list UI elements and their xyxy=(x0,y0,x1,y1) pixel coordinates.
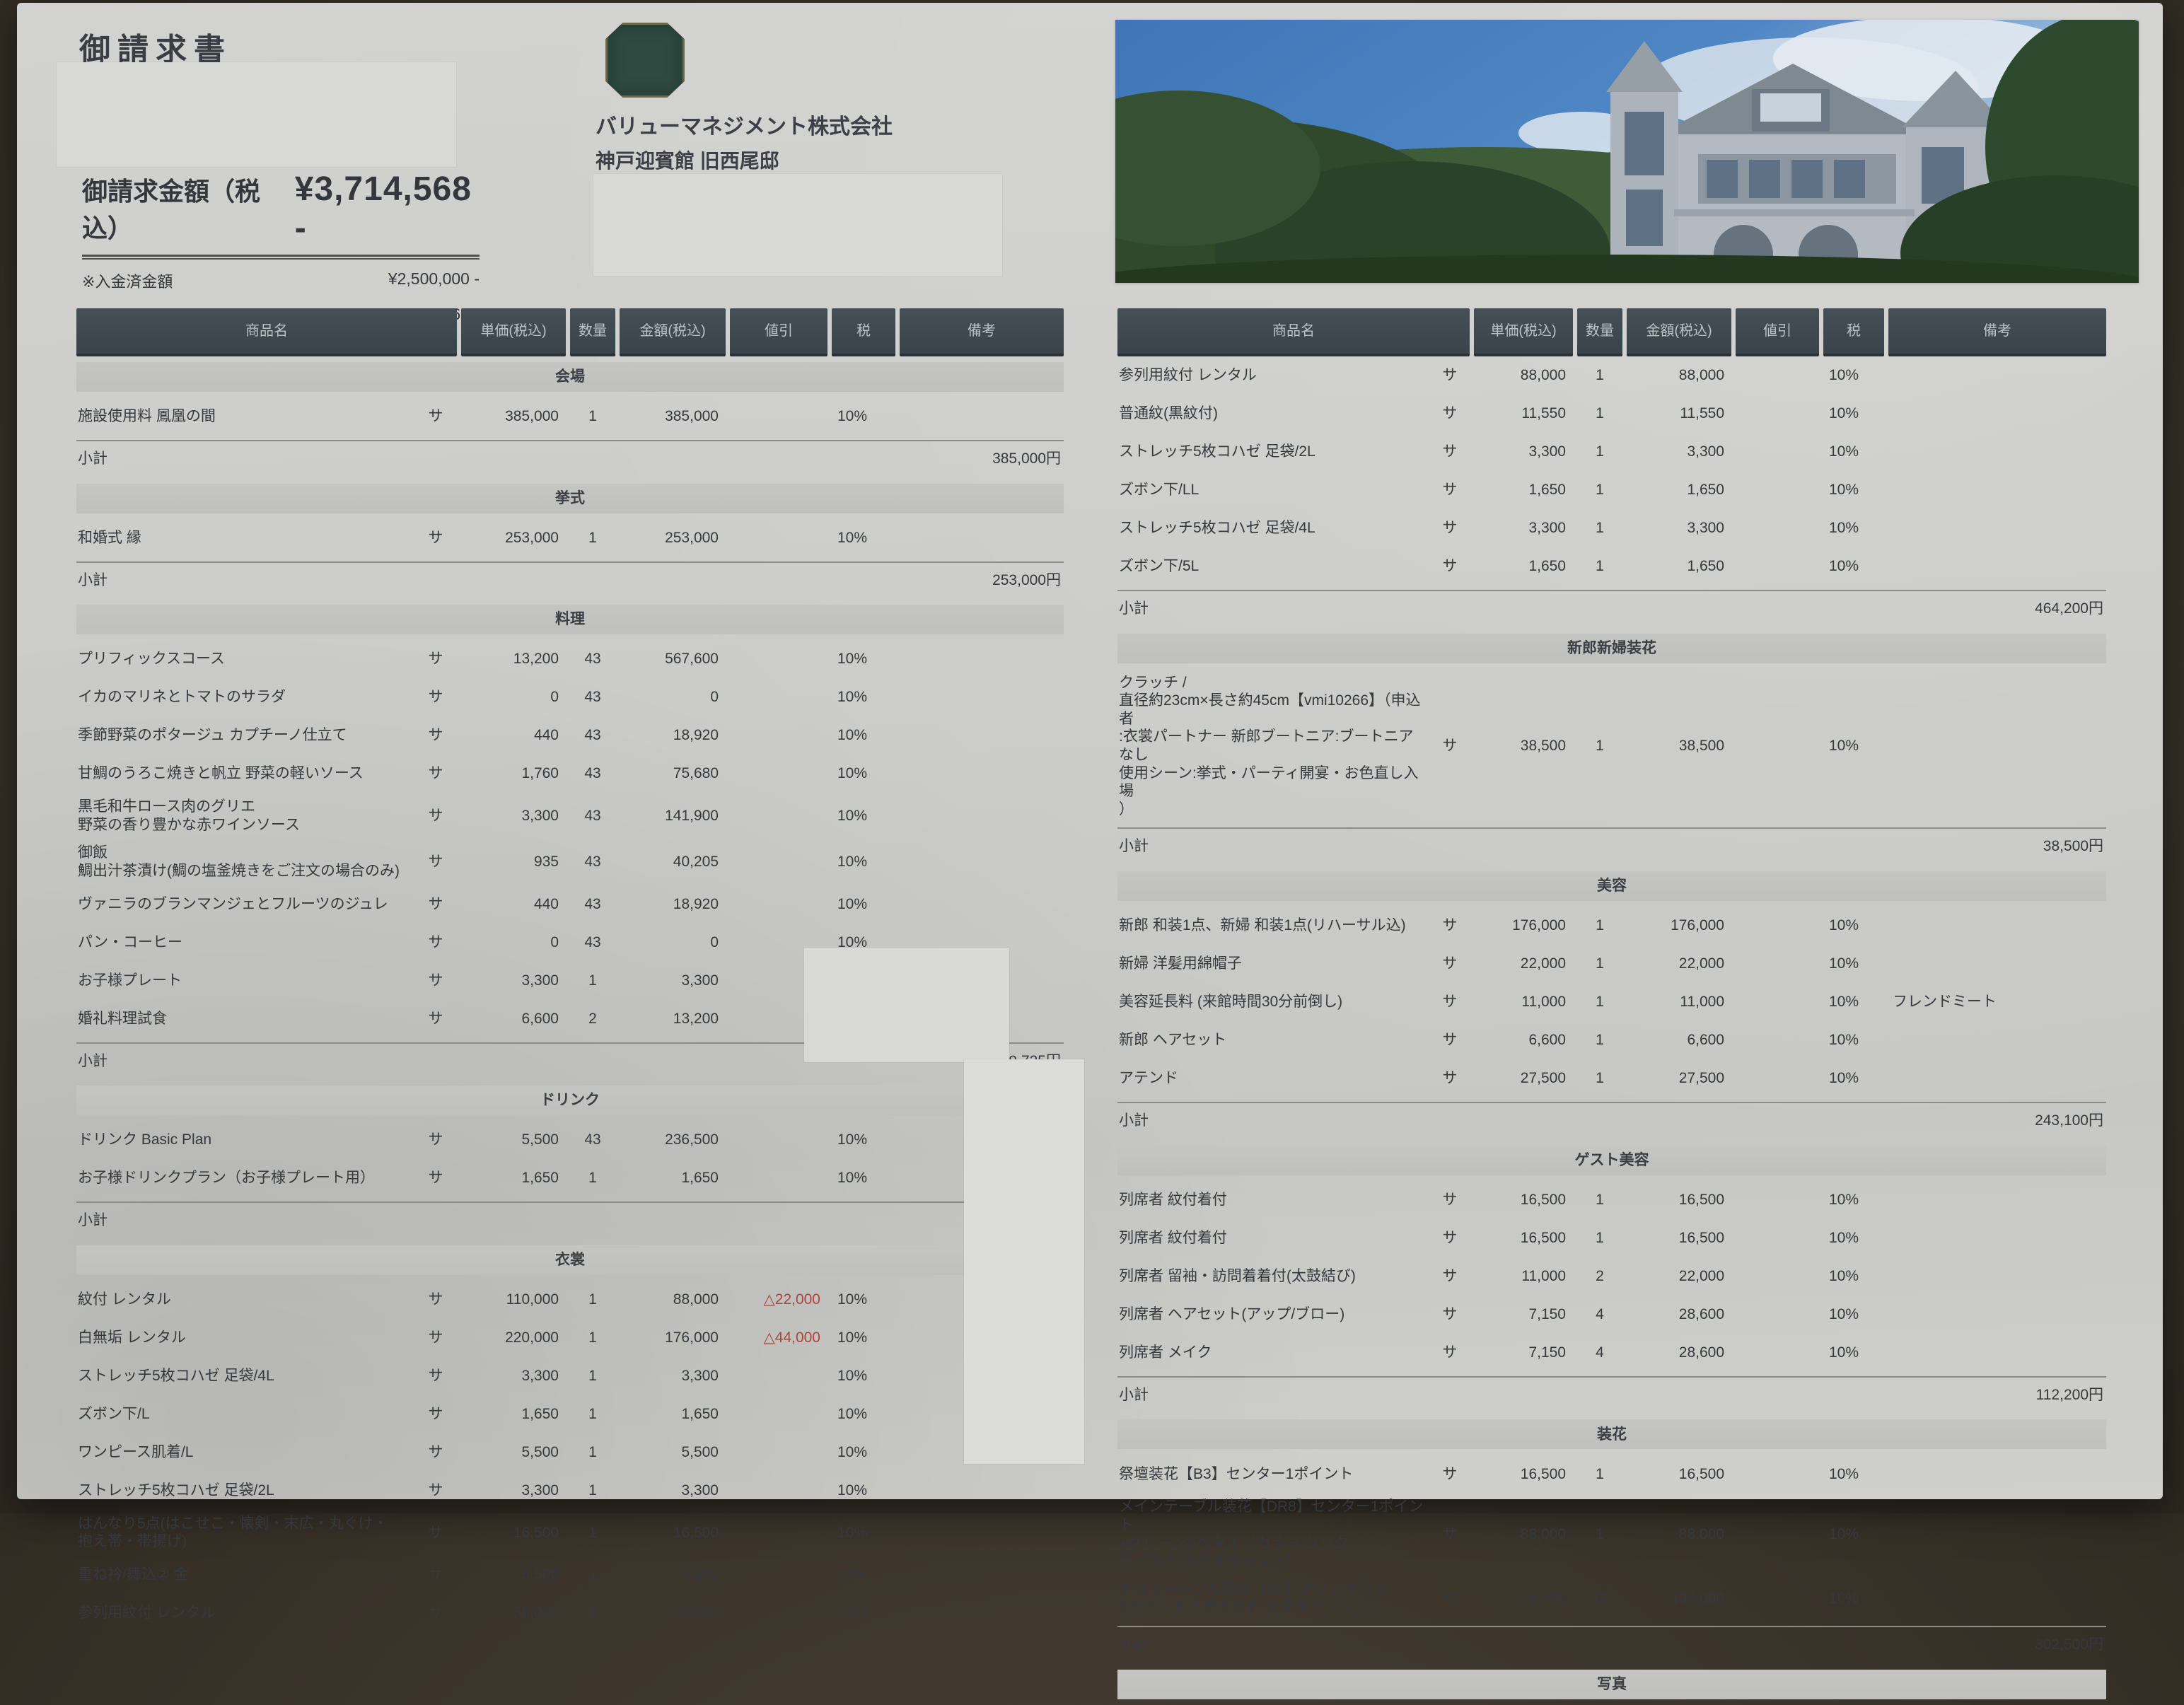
tax-rate-cell: 10% xyxy=(1823,737,1884,755)
billing-summary: 御請求金額（税込） ¥3,714,568 - ※入金済金額 ¥2,500,000… xyxy=(82,170,480,327)
tax-rate-cell: 10% xyxy=(832,1131,895,1149)
line-item-row: ズボン下/Lサ1,65011,65010% xyxy=(76,1395,1064,1433)
column-header-6: 備考 xyxy=(1888,308,2106,356)
item-name-cell: 白無垢 レンタル xyxy=(76,1329,410,1347)
line-item-row: 普通紋(黒紋付)サ11,550111,55010% xyxy=(1117,395,2106,433)
unit-price-cell: 16,500 xyxy=(1474,1590,1573,1608)
unit-price-cell: 11,550 xyxy=(1474,405,1573,423)
service-mark-cell: サ xyxy=(414,1291,457,1309)
issuer-venue-name: 神戸迎賓館 旧西尾邸 xyxy=(596,146,1020,174)
tax-rate-cell: 10% xyxy=(1823,1344,1884,1362)
subtotal-amount: 112,200円 xyxy=(2036,1386,2103,1404)
service-mark-cell: サ xyxy=(1430,916,1470,935)
amount-cell: 27,500 xyxy=(1627,1069,1731,1088)
quantity-cell: 1 xyxy=(570,407,615,426)
column-header-5: 税 xyxy=(832,308,895,356)
service-mark-cell: サ xyxy=(1430,737,1470,755)
unit-price-cell: 1,760 xyxy=(461,764,566,783)
line-item-row: 季節野菜のポタージュ カプチーノ仕立てサ4404318,92010% xyxy=(76,716,1064,755)
tax-rate-cell: 10% xyxy=(832,895,895,914)
tax-rate-cell: 10% xyxy=(1823,1305,1884,1324)
quantity-cell: 43 xyxy=(570,1131,615,1149)
redacted-bottom-block xyxy=(964,1059,1084,1464)
tax-rate-cell: 10% xyxy=(832,688,895,706)
service-mark-cell: サ xyxy=(1430,1344,1470,1362)
subtotal-label: 小計 xyxy=(1119,837,1149,856)
subtotal-label: 小計 xyxy=(1119,1386,1149,1404)
subtotal-amount: 253,000円 xyxy=(992,571,1061,590)
amount-cell: 16,500 xyxy=(1627,1229,1731,1247)
amount-cell: 11,000 xyxy=(1627,993,1731,1011)
amount-cell: 3,300 xyxy=(620,1482,726,1500)
unit-price-cell: 88,000 xyxy=(1474,366,1573,385)
quantity-cell: 12 xyxy=(1577,1590,1622,1608)
tax-rate-cell: 10% xyxy=(1823,1031,1884,1049)
service-mark-cell: サ xyxy=(414,1604,457,1622)
amount-cell: 0 xyxy=(620,688,726,706)
item-name-cell: メインテーブル装花【DR8】センター1ポイント +グリーン&ペタル（カラー:シッ… xyxy=(1117,1498,1426,1570)
service-mark-cell: サ xyxy=(1430,955,1470,973)
amount-cell: 75,680 xyxy=(620,764,726,783)
line-item-row: ストレッチ5枚コハゼ 足袋/2Lサ3,30013,30010% xyxy=(1117,433,2106,471)
amount-cell: 0 xyxy=(620,933,726,952)
quantity-cell: 43 xyxy=(570,933,615,952)
amount-cell: 176,000 xyxy=(1627,916,1731,935)
amount-cell: 88,000 xyxy=(1627,1525,1731,1544)
tax-rate-cell: 10% xyxy=(1823,955,1884,973)
unit-price-cell: 1,650 xyxy=(1474,557,1573,576)
subtotal-label: 小計 xyxy=(78,571,108,590)
quantity-cell: 43 xyxy=(570,807,615,825)
amount-cell: 253,000 xyxy=(620,529,726,547)
amount-cell: 236,500 xyxy=(620,1131,726,1149)
amount-cell: 11,550 xyxy=(1627,405,1731,423)
service-mark-cell: サ xyxy=(1430,1229,1470,1247)
column-header-0: 商品名 xyxy=(1117,308,1470,356)
item-name-cell: クラッチ / 直径約23cm×長さ約45cm【vmi10266】（申込者 :衣裳… xyxy=(1117,674,1426,819)
service-mark-cell: サ xyxy=(414,1524,457,1542)
line-item-row: ズボン下/5Lサ1,65011,65010% xyxy=(1117,547,2106,586)
subtotal-row: 小計385,000円 xyxy=(76,440,1064,478)
item-name-cell: 列席者 留袖・訪問着着付(太鼓結び) xyxy=(1117,1267,1426,1286)
item-name-cell: お子様プレート xyxy=(76,972,410,990)
service-mark-cell: サ xyxy=(414,1010,457,1028)
quantity-cell: 1 xyxy=(1577,443,1622,461)
tax-rate-cell: 10% xyxy=(1823,1069,1884,1088)
quantity-cell: 1 xyxy=(1577,1191,1622,1209)
item-name-cell: ワンピース肌着/L xyxy=(76,1443,410,1462)
line-item-row: 黒毛和牛ロース肉のグリエ 野菜の香り豊かな赤ワインソースサ3,30043141,… xyxy=(76,793,1064,839)
line-item-row: ストレッチ5枚コハゼ 足袋/4Lサ3,30013,30010% xyxy=(1117,509,2106,547)
quantity-cell: 1 xyxy=(1577,955,1622,973)
tax-rate-cell: 10% xyxy=(1823,1465,1884,1484)
line-item-row: 列席者 留袖・訪問着着付(太鼓結び)サ11,000222,00010% xyxy=(1117,1257,2106,1296)
tax-rate-cell: 10% xyxy=(832,1367,895,1385)
unit-price-cell: 440 xyxy=(461,895,566,914)
line-item-row: 御飯 鯛出汁茶漬け(鯛の塩釜焼きをご注文の場合のみ)サ9354340,20510… xyxy=(76,839,1064,885)
quantity-cell: 1 xyxy=(570,1405,615,1424)
venue-crest-logo-icon xyxy=(605,23,685,98)
line-item-row: 参列用紋付 レンタルサ88,000188,00010% xyxy=(1117,356,2106,395)
amount-cell: 38,500 xyxy=(1627,737,1731,755)
quantity-cell: 1 xyxy=(570,1291,615,1309)
issuer-company-name: バリューマネジメント株式会社 xyxy=(596,109,1020,140)
subtotal-row: 小計112,200円 xyxy=(1117,1376,2106,1414)
remarks-cell: フレンドミート xyxy=(1888,993,2106,1011)
quantity-cell: 2 xyxy=(1577,1267,1622,1286)
column-header-5: 税 xyxy=(1823,308,1884,356)
item-name-cell: 甘鯛のうろこ焼きと帆立 野菜の軽いソース xyxy=(76,764,410,783)
service-mark-cell: サ xyxy=(1430,1267,1470,1286)
venue-photo-image xyxy=(1115,20,2139,283)
service-mark-cell: サ xyxy=(414,895,457,914)
unit-price-cell: 3,300 xyxy=(461,972,566,990)
line-item-row: イカのマリネとトマトのサラダサ043010% xyxy=(76,678,1064,716)
column-header-3: 金額(税込) xyxy=(620,308,726,356)
service-mark-cell: サ xyxy=(1430,1191,1470,1209)
item-name-cell: ストレッチ5枚コハゼ 足袋/2L xyxy=(76,1482,410,1500)
item-name-cell: 新婦 洋髪用綿帽子 xyxy=(1117,955,1426,973)
quantity-cell: 43 xyxy=(570,764,615,783)
column-header-0: 商品名 xyxy=(76,308,457,356)
line-item-row: 美容延長料 (来館時間30分前倒し)サ11,000111,00010%フレンドミ… xyxy=(1117,983,2106,1021)
tax-rate-cell: 10% xyxy=(1823,916,1884,935)
unit-price-cell: 16,500 xyxy=(1474,1191,1573,1209)
quantity-cell: 43 xyxy=(570,650,615,668)
tax-rate-cell: 10% xyxy=(832,853,895,871)
quantity-cell: 43 xyxy=(570,853,615,871)
line-item-row: ストレッチ5枚コハゼ 足袋/4Lサ3,30013,30010% xyxy=(76,1357,1064,1395)
table-header-row: 商品名単価(税込)数量金額(税込)値引税備考 xyxy=(76,308,1064,356)
unit-price-cell: 16,500 xyxy=(1474,1465,1573,1484)
item-name-cell: 参列用紋付 レンタル xyxy=(1117,366,1426,385)
tax-rate-cell: 10% xyxy=(1823,519,1884,537)
quantity-cell: 43 xyxy=(570,895,615,914)
tax-rate-cell: 10% xyxy=(832,1405,895,1424)
service-mark-cell: サ xyxy=(414,650,457,668)
line-item-row: プリフィックスコースサ13,20043567,60010% xyxy=(76,640,1064,678)
amount-cell: 1,650 xyxy=(620,1405,726,1424)
line-item-row: 列席者 メイクサ7,150428,60010% xyxy=(1117,1334,2106,1372)
column-header-3: 金額(税込) xyxy=(1627,308,1731,356)
quantity-cell: 1 xyxy=(570,1367,615,1385)
subtotal-label: 小計 xyxy=(78,450,108,468)
quantity-cell: 1 xyxy=(1577,405,1622,423)
amount-cell: 55,000 xyxy=(620,1604,726,1622)
service-mark-cell: サ xyxy=(1430,366,1470,385)
line-item-row: 新婦 洋髪用綿帽子サ22,000122,00010% xyxy=(1117,945,2106,983)
item-name-cell: 祭壇装花【B3】センター1ポイント xyxy=(1117,1465,1426,1484)
quantity-cell: 1 xyxy=(1577,1465,1622,1484)
quantity-cell: 1 xyxy=(570,1604,615,1622)
amount-cell: 22,000 xyxy=(1627,955,1731,973)
service-mark-cell: サ xyxy=(414,1169,457,1187)
unit-price-cell: 1,650 xyxy=(1474,481,1573,499)
tax-rate-cell: 10% xyxy=(1823,1229,1884,1247)
paid-amount-line: ※入金済金額 ¥2,500,000 - xyxy=(82,269,480,292)
unit-price-cell: 5,500 xyxy=(461,1566,566,1584)
tax-rate-cell: 10% xyxy=(832,807,895,825)
service-mark-cell: サ xyxy=(414,933,457,952)
quantity-cell: 1 xyxy=(570,1482,615,1500)
quantity-cell: 4 xyxy=(1577,1344,1622,1362)
unit-price-cell: 16,500 xyxy=(1474,1229,1573,1247)
line-item-row: ゲストテーブル装花【F5】クリアグラス 3ポイント（テイスト:スタイリッシュ）サ… xyxy=(1117,1576,2106,1622)
unit-price-cell: 1,650 xyxy=(461,1405,566,1424)
unit-price-cell: 3,300 xyxy=(461,1367,566,1385)
amount-cell: 1,650 xyxy=(620,1169,726,1187)
unit-price-cell: 0 xyxy=(461,933,566,952)
item-name-cell: 新郎 ヘアセット xyxy=(1117,1031,1426,1049)
item-name-cell: ドリンク Basic Plan xyxy=(76,1131,410,1149)
line-item-row: ドリンク Basic Planサ5,50043236,50010% xyxy=(76,1121,1064,1159)
tax-rate-cell: 10% xyxy=(832,1482,895,1500)
quantity-cell: 1 xyxy=(570,529,615,547)
tax-rate-cell: 10% xyxy=(1823,557,1884,576)
service-mark-cell: サ xyxy=(1430,1069,1470,1088)
total-amount-line: 御請求金額（税込） ¥3,714,568 - xyxy=(82,170,480,257)
column-header-1: 単価(税込) xyxy=(461,308,566,356)
section-header: ドリンク xyxy=(76,1086,1064,1115)
quantity-cell: 1 xyxy=(1577,557,1622,576)
subtotal-label: 小計 xyxy=(1119,1112,1149,1130)
tax-rate-cell: 10% xyxy=(832,764,895,783)
venue-photo xyxy=(1115,20,2139,283)
unit-price-cell: 3,300 xyxy=(461,807,566,825)
line-item-row: 白無垢 レンタルサ220,0001176,000△44,00010% xyxy=(76,1319,1064,1357)
unit-price-cell: 3,300 xyxy=(1474,443,1573,461)
column-header-2: 数量 xyxy=(1577,308,1622,356)
service-mark-cell: サ xyxy=(414,726,457,745)
unit-price-cell: 1,650 xyxy=(461,1169,566,1187)
quantity-cell: 1 xyxy=(1577,1069,1622,1088)
quantity-cell: 1 xyxy=(1577,481,1622,499)
amount-cell: 3,300 xyxy=(620,972,726,990)
tax-rate-cell: 10% xyxy=(832,1169,895,1187)
line-item-row: 列席者 ヘアセット(アップ/ブロー)サ7,150428,60010% xyxy=(1117,1296,2106,1334)
item-name-cell: 列席者 紋付着付 xyxy=(1117,1229,1426,1247)
item-name-cell: ストレッチ5枚コハゼ 足袋/4L xyxy=(1117,519,1426,537)
amount-cell: 1,650 xyxy=(1627,557,1731,576)
service-mark-cell: サ xyxy=(1430,1590,1470,1608)
unit-price-cell: 7,150 xyxy=(1474,1344,1573,1362)
tax-rate-cell: 10% xyxy=(1823,481,1884,499)
subtotal-label: 小計 xyxy=(1119,600,1149,618)
tax-rate-cell: 10% xyxy=(832,1329,895,1347)
unit-price-cell: 440 xyxy=(461,726,566,745)
line-item-row: ストレッチ5枚コハゼ 足袋/2Lサ3,30013,30010% xyxy=(76,1472,1064,1510)
item-name-cell: 重ね衿/舞込② 金 xyxy=(76,1566,410,1584)
section-header: 写真 xyxy=(1117,1670,2106,1699)
amount-cell: 3,300 xyxy=(620,1367,726,1385)
section-header: 装花 xyxy=(1117,1419,2106,1449)
subtotal-amount: 38,500円 xyxy=(2043,837,2103,856)
line-item-row: クラッチ / 直径約23cm×長さ約45cm【vmi10266】（申込者 :衣裳… xyxy=(1117,669,2106,824)
item-name-cell: パン・コーヒー xyxy=(76,933,410,952)
item-name-cell: 列席者 ヘアセット(アップ/ブロー) xyxy=(1117,1305,1426,1324)
tax-rate-cell: 10% xyxy=(832,1604,895,1622)
column-header-1: 単価(税込) xyxy=(1474,308,1573,356)
subtotal-amount: 464,200円 xyxy=(2035,600,2103,618)
item-name-cell: プリフィックスコース xyxy=(76,650,410,668)
section-header: 料理 xyxy=(76,605,1064,634)
tax-rate-cell: 10% xyxy=(832,1443,895,1462)
subtotal-amount: 243,100円 xyxy=(2035,1112,2103,1130)
line-item-row: 重ね衿/舞込② 金サ5,50015,50010% xyxy=(76,1556,1064,1594)
unit-price-cell: 0 xyxy=(461,688,566,706)
tax-rate-cell: 10% xyxy=(832,650,895,668)
unit-price-cell: 3,300 xyxy=(461,1482,566,1500)
item-name-cell: 婚礼料理試食 xyxy=(76,1010,410,1028)
line-item-row: 和婚式 縁サ253,0001253,00010% xyxy=(76,519,1064,557)
subtotal-label: 小計 xyxy=(1119,1636,1149,1654)
subtotal-row: 小計464,200円 xyxy=(1117,590,2106,628)
quantity-cell: 1 xyxy=(570,972,615,990)
line-item-row: ズボン下/LLサ1,65011,65010% xyxy=(1117,471,2106,509)
unit-price-cell: 11,000 xyxy=(1474,1267,1573,1286)
service-mark-cell: サ xyxy=(414,807,457,825)
amount-cell: 88,000 xyxy=(620,1291,726,1309)
tax-rate-cell: 10% xyxy=(832,726,895,745)
unit-price-cell: 176,000 xyxy=(1474,916,1573,935)
redacted-mid-block xyxy=(804,948,1009,1062)
subtotal-row: 小計243,100円 xyxy=(1117,1102,2106,1140)
amount-cell: 3,300 xyxy=(1627,519,1731,537)
unit-price-cell: 110,000 xyxy=(461,1291,566,1309)
line-item-row: 新郎 和装1点、新婦 和装1点(リハーサル込)サ176,0001176,0001… xyxy=(1117,907,2106,945)
redacted-recipient-block xyxy=(57,62,456,167)
item-name-cell: 参列用紋付 レンタル xyxy=(76,1604,410,1622)
line-item-row: 参列用紋付 レンタルサ55,000155,00010% xyxy=(76,1594,1064,1632)
service-mark-cell: サ xyxy=(1430,443,1470,461)
item-name-cell: 普通紋(黒紋付) xyxy=(1117,405,1426,423)
column-header-2: 数量 xyxy=(570,308,615,356)
service-mark-cell: サ xyxy=(414,529,457,547)
quantity-cell: 4 xyxy=(1577,1305,1622,1324)
subtotal-label: 小計 xyxy=(78,1052,108,1071)
amount-cell: 28,600 xyxy=(1627,1305,1731,1324)
item-name-cell: ストレッチ5枚コハゼ 足袋/2L xyxy=(1117,443,1426,461)
column-header-4: 値引 xyxy=(1736,308,1819,356)
amount-cell: 3,300 xyxy=(1627,443,1731,461)
tax-rate-cell: 10% xyxy=(832,407,895,426)
column-header-6: 備考 xyxy=(900,308,1064,356)
subtotal-label: 小計 xyxy=(78,1211,108,1230)
line-item-row: ヴァニラのブランマンジェとフルーツのジュレサ4404318,92010% xyxy=(76,885,1064,924)
quantity-cell: 1 xyxy=(1577,519,1622,537)
quantity-cell: 1 xyxy=(1577,366,1622,385)
service-mark-cell: サ xyxy=(414,972,457,990)
quantity-cell: 1 xyxy=(1577,1229,1622,1247)
tax-rate-cell: 10% xyxy=(1823,405,1884,423)
unit-price-cell: 13,200 xyxy=(461,650,566,668)
subtotal-row: 小計253,000円 xyxy=(76,561,1064,600)
amount-cell: 5,500 xyxy=(620,1443,726,1462)
tax-rate-cell: 10% xyxy=(1823,1590,1884,1608)
unit-price-cell: 16,500 xyxy=(461,1524,566,1542)
service-mark-cell: サ xyxy=(1430,557,1470,576)
service-mark-cell: サ xyxy=(414,1329,457,1347)
subtotal-row: 小計38,500円 xyxy=(1117,827,2106,866)
tax-rate-cell: 10% xyxy=(832,529,895,547)
service-mark-cell: サ xyxy=(1430,481,1470,499)
tax-rate-cell: 10% xyxy=(1823,1267,1884,1286)
item-name-cell: アテンド xyxy=(1117,1069,1426,1088)
item-name-cell: ズボン下/LL xyxy=(1117,481,1426,499)
section-header: 新郎新婦装花 xyxy=(1117,634,2106,663)
quantity-cell: 43 xyxy=(570,726,615,745)
amount-cell: 18,920 xyxy=(620,726,726,745)
amount-cell: 16,500 xyxy=(620,1524,726,1542)
subtotal-amount: 302,500円 xyxy=(2035,1636,2103,1654)
item-name-cell: ズボン下/5L xyxy=(1117,557,1426,576)
service-mark-cell: サ xyxy=(414,407,457,426)
column-header-4: 値引 xyxy=(730,308,827,356)
quantity-cell: 1 xyxy=(1577,916,1622,935)
item-name-cell: ゲストテーブル装花【F5】クリアグラス 3ポイント（テイスト:スタイリッシュ） xyxy=(1117,1581,1426,1617)
total-amount-label: 御請求金額（税込） xyxy=(82,171,295,245)
unit-price-cell: 3,300 xyxy=(1474,519,1573,537)
redacted-address-block xyxy=(593,174,1002,276)
item-name-cell: 施設使用料 鳳凰の間 xyxy=(76,407,410,426)
item-name-cell: はんなり5点(はこせこ・懐剣・末広・丸ぐけ・ 抱え帯・帯揚げ) xyxy=(76,1515,410,1551)
section-header: 美容 xyxy=(1117,871,2106,901)
tax-rate-cell: 10% xyxy=(832,1291,895,1309)
quantity-cell: 1 xyxy=(570,1443,615,1462)
item-name-cell: 列席者 メイク xyxy=(1117,1344,1426,1362)
service-mark-cell: サ xyxy=(414,1443,457,1462)
line-item-row: はんなり5点(はこせこ・懐剣・末広・丸ぐけ・ 抱え帯・帯揚げ)サ16,50011… xyxy=(76,1510,1064,1556)
service-mark-cell: サ xyxy=(414,764,457,783)
line-item-row: 列席者 紋付着付サ16,500116,50010% xyxy=(1117,1219,2106,1257)
service-mark-cell: サ xyxy=(414,688,457,706)
item-name-cell: イカのマリネとトマトのサラダ xyxy=(76,688,410,706)
quantity-cell: 1 xyxy=(1577,1031,1622,1049)
discount-cell: △22,000 xyxy=(730,1291,827,1309)
unit-price-cell: 5,500 xyxy=(461,1131,566,1149)
unit-price-cell: 27,500 xyxy=(1474,1069,1573,1088)
service-mark-cell: サ xyxy=(1430,1525,1470,1544)
quantity-cell: 1 xyxy=(570,1566,615,1584)
item-name-cell: 季節野菜のポタージュ カプチーノ仕立て xyxy=(76,726,410,745)
amount-cell: 5,500 xyxy=(620,1566,726,1584)
amount-cell: 13,200 xyxy=(620,1010,726,1028)
item-name-cell: 美容延長料 (来館時間30分前倒し) xyxy=(1117,993,1426,1011)
section-header: 挙式 xyxy=(76,484,1064,513)
unit-price-cell: 5,500 xyxy=(461,1443,566,1462)
item-name-cell: 紋付 レンタル xyxy=(76,1291,410,1309)
line-item-row: 甘鯛のうろこ焼きと帆立 野菜の軽いソースサ1,7604375,68010% xyxy=(76,755,1064,793)
service-mark-cell: サ xyxy=(414,1566,457,1584)
item-name-cell: ズボン下/L xyxy=(76,1405,410,1424)
table-header-row: 商品名単価(税込)数量金額(税込)値引税備考 xyxy=(1117,308,2106,356)
service-mark-cell: サ xyxy=(1430,1031,1470,1049)
quantity-cell: 2 xyxy=(570,1010,615,1028)
line-item-row: 祭壇装花【B3】センター1ポイントサ16,500116,50010% xyxy=(1117,1455,2106,1493)
line-item-row: お子様ドリンクプラン（お子様プレート用）サ1,65011,65010% xyxy=(76,1159,1064,1197)
item-name-cell: 列席者 紋付着付 xyxy=(1117,1191,1426,1209)
tax-rate-cell: 10% xyxy=(1823,1525,1884,1544)
item-name-cell: ヴァニラのブランマンジェとフルーツのジュレ xyxy=(76,895,410,914)
amount-cell: 18,920 xyxy=(620,895,726,914)
unit-price-cell: 935 xyxy=(461,853,566,871)
section-header: 衣裳 xyxy=(76,1245,1064,1275)
line-item-row: 紋付 レンタルサ110,000188,000△22,00010% xyxy=(76,1281,1064,1319)
amount-cell: 385,000 xyxy=(620,407,726,426)
unit-price-cell: 253,000 xyxy=(461,529,566,547)
amount-cell: 198,000 xyxy=(1627,1590,1731,1608)
line-item-row: メインテーブル装花【DR8】センター1ポイント +グリーン&ペタル（カラー:シッ… xyxy=(1117,1493,2106,1575)
